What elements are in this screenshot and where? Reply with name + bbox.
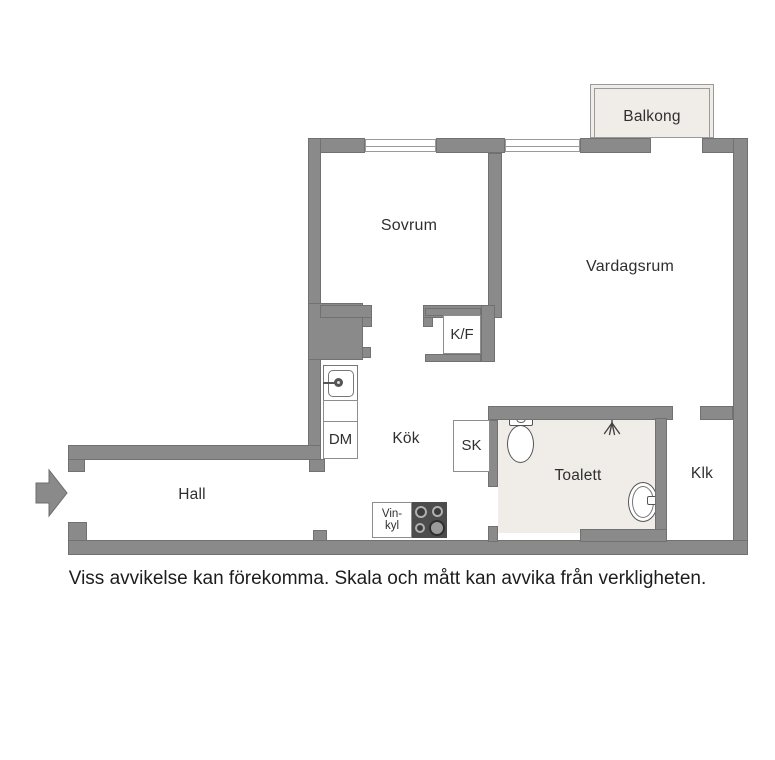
- wall-top-c: [580, 138, 651, 153]
- wall-entry-jamb-bottom: [68, 522, 87, 541]
- floor-plan: Balkong: [0, 0, 775, 760]
- wall-bottom: [68, 540, 748, 555]
- wine-fridge-box: Vin- kyl: [372, 502, 412, 538]
- window-vardagsrum: [505, 139, 580, 152]
- wall-entry-jamb-top: [68, 459, 85, 472]
- fridge-freezer-box: K/F: [443, 315, 481, 354]
- dishwasher-box: DM: [323, 421, 358, 459]
- disclaimer-text: Viss avvikelse kan förekomma. Skala och …: [0, 568, 775, 590]
- kitchen-sink-knob-icon: [334, 378, 343, 387]
- wall-toalett-bottom-step: [580, 529, 667, 542]
- stove-burner-icon: [429, 520, 445, 536]
- wall-shaft-tab-bottom: [362, 347, 371, 358]
- wall-left-upper: [308, 138, 321, 460]
- wine-fridge-label-line2: kyl: [385, 520, 399, 532]
- window-sovrum: [365, 139, 436, 152]
- fridge-freezer-label: K/F: [450, 327, 473, 343]
- stove-burner-icon: [415, 523, 425, 533]
- room-label-toalett: Toalett: [554, 467, 601, 485]
- room-label-hall: Hall: [178, 486, 206, 504]
- entry-arrow-icon: [34, 468, 70, 518]
- wall-toalett-left-corner: [488, 526, 498, 542]
- wall-hall-kok-jamb: [313, 530, 327, 541]
- dishwasher-label: DM: [329, 432, 352, 448]
- wall-hall-jamb-right: [309, 459, 325, 472]
- room-label-balkong: Balkong: [623, 108, 680, 126]
- wall-right: [733, 138, 748, 555]
- wall-sovrum-door-jamb-right: [423, 317, 433, 327]
- room-label-kok: Kök: [392, 430, 419, 448]
- wall-hall-top: [68, 445, 321, 460]
- toilet-icon: [507, 425, 534, 463]
- stove-burner-icon: [415, 506, 427, 518]
- wine-fridge-label-line1: Vin-: [382, 508, 402, 520]
- cabinet-label: SK: [461, 438, 481, 454]
- wall-kf-stub-bottom: [425, 354, 481, 362]
- wall-sovrum-vardagsrum: [488, 153, 502, 318]
- room-label-sovrum: Sovrum: [381, 217, 437, 235]
- stove-burner-icon: [432, 506, 443, 517]
- kitchen-counter: [323, 400, 358, 423]
- room-label-klk: Klk: [691, 465, 713, 483]
- room-label-vardagsrum: Vardagsrum: [586, 258, 674, 276]
- wall-kok-vardagsrum: [481, 305, 495, 362]
- stove-icon: [412, 502, 447, 538]
- wall-top-b: [436, 138, 505, 153]
- cabinet-box: SK: [453, 420, 490, 472]
- wall-klk-top: [700, 406, 733, 420]
- wall-toalett-top: [488, 406, 673, 420]
- wall-sovrum-door-jamb-left: [362, 317, 372, 327]
- wall-toalett-klk: [655, 418, 667, 540]
